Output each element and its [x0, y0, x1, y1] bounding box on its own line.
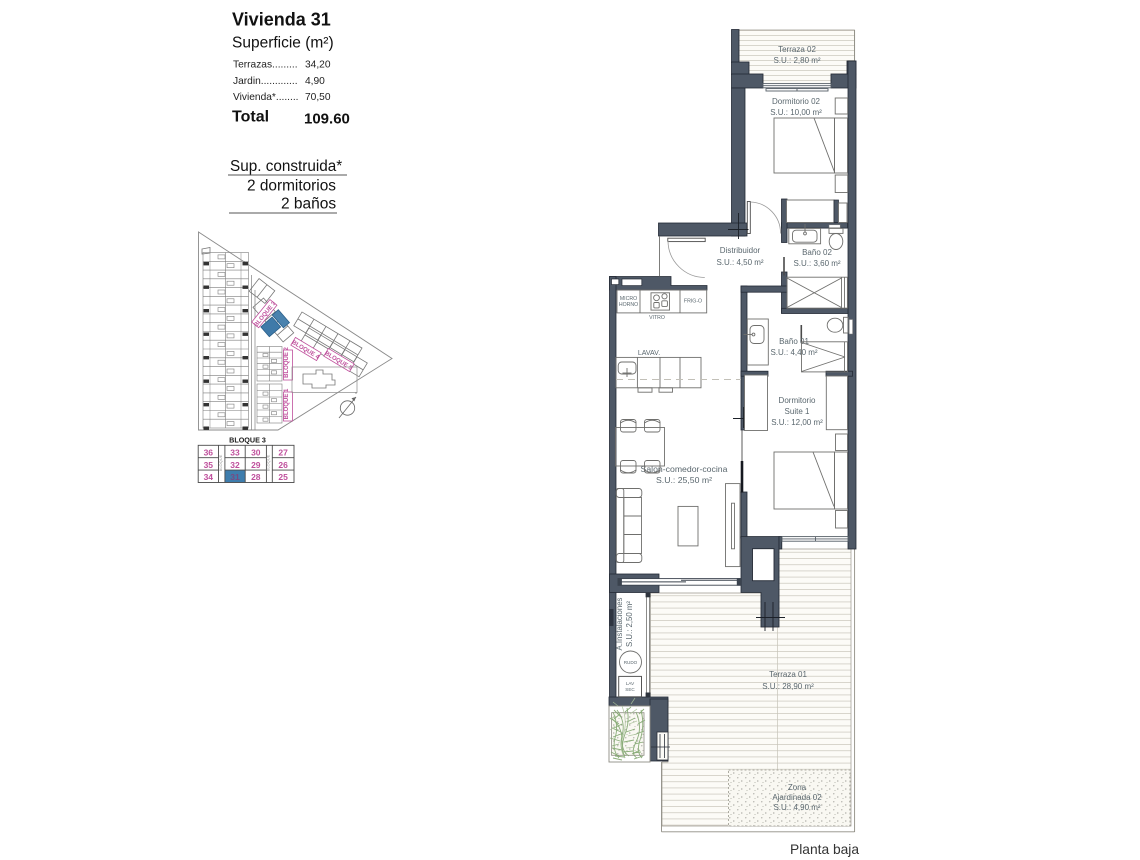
svg-text:33: 33	[230, 447, 240, 457]
svg-text:S.U.: 25,50 m²: S.U.: 25,50 m²	[656, 475, 712, 485]
svg-text:109.60: 109.60	[304, 111, 350, 128]
svg-text:4,90: 4,90	[305, 76, 325, 87]
svg-text:S.U.: 3,60 m²: S.U.: 3,60 m²	[793, 259, 840, 268]
svg-text:Ajardinada 02: Ajardinada 02	[772, 793, 822, 802]
svg-text:31: 31	[230, 472, 240, 482]
svg-text:26: 26	[278, 460, 288, 470]
svg-text:SEC: SEC	[625, 687, 635, 692]
svg-text:Dormitorio: Dormitorio	[779, 396, 816, 405]
svg-text:Distribuidor: Distribuidor	[720, 246, 761, 255]
svg-text:S.U.: 2,50 m²: S.U.: 2,50 m²	[625, 601, 634, 647]
svg-text:30: 30	[251, 447, 261, 457]
svg-text:Terraza 02: Terraza 02	[778, 45, 816, 54]
svg-text:A.Instalaciones: A.Instalaciones	[615, 597, 624, 650]
svg-text:BLOQUE: BLOQUE	[218, 454, 223, 471]
svg-text:27: 27	[278, 447, 288, 457]
svg-text:Jardin.............: Jardin.............	[233, 76, 298, 87]
svg-text:BLOQUE: BLOQUE	[265, 454, 270, 471]
svg-text:34: 34	[204, 472, 214, 482]
svg-text:Superficie (m²): Superficie (m²)	[232, 35, 334, 52]
svg-text:2 dormitorios: 2 dormitorios	[247, 178, 336, 195]
svg-text:S.U.: 12,00 m²: S.U.: 12,00 m²	[771, 418, 823, 427]
svg-text:32: 32	[230, 460, 240, 470]
svg-text:35: 35	[204, 460, 214, 470]
svg-text:°: °	[355, 392, 357, 398]
svg-text:36: 36	[204, 447, 214, 457]
svg-text:BLOQUE 2: BLOQUE 2	[284, 347, 290, 378]
svg-text:34,20: 34,20	[305, 60, 331, 71]
svg-text:28: 28	[251, 472, 261, 482]
svg-text:S.U.: 4,90 m²: S.U.: 4,90 m²	[773, 803, 820, 812]
svg-text:S.U.: 10,00 m²: S.U.: 10,00 m²	[770, 108, 822, 117]
svg-text:HORNO: HORNO	[619, 302, 638, 308]
svg-text:29: 29	[251, 460, 261, 470]
svg-text:2 baños: 2 baños	[281, 196, 336, 213]
svg-text:VITRO: VITRO	[649, 315, 665, 321]
svg-text:Zona: Zona	[788, 783, 807, 792]
svg-text:S.U.: 28,90 m²: S.U.: 28,90 m²	[762, 682, 814, 691]
svg-text:LAVAV.: LAVAV.	[638, 350, 660, 357]
svg-text:Terrazas.........: Terrazas.........	[233, 60, 298, 71]
svg-text:Dormitorio 02: Dormitorio 02	[772, 97, 821, 106]
svg-text:BLOQUE 3: BLOQUE 3	[229, 436, 266, 445]
svg-text:Baño 02: Baño 02	[802, 248, 832, 257]
svg-text:Total: Total	[232, 108, 269, 125]
svg-text:Planta baja: Planta baja	[790, 842, 859, 857]
svg-text:25: 25	[278, 472, 288, 482]
svg-text:FRIG-O: FRIG-O	[684, 299, 702, 305]
svg-text:S.U.: 4,40 m²: S.U.: 4,40 m²	[770, 348, 817, 357]
svg-text:Suite 1: Suite 1	[785, 407, 810, 416]
svg-text:S.U.: 2,80 m²: S.U.: 2,80 m²	[773, 56, 820, 65]
svg-text:BLOQUE 1: BLOQUE 1	[284, 388, 290, 419]
svg-text:LAV: LAV	[626, 681, 635, 686]
svg-text:Sup. construida*: Sup. construida*	[230, 158, 342, 175]
svg-text:Vivienda 31: Vivienda 31	[232, 10, 331, 30]
svg-text:Vivienda*........: Vivienda*........	[233, 92, 299, 103]
svg-text:Terraza 01: Terraza 01	[769, 670, 807, 679]
svg-text:RUDO: RUDO	[624, 660, 638, 665]
svg-text:70,50: 70,50	[305, 92, 331, 103]
svg-text:S.U.: 4,50 m²: S.U.: 4,50 m²	[716, 258, 763, 267]
